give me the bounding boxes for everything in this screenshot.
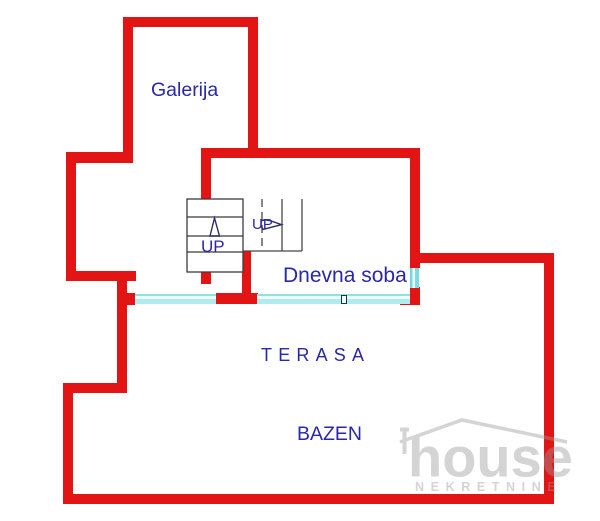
svg-text:NEKRETNINE: NEKRETNINE — [415, 480, 562, 494]
